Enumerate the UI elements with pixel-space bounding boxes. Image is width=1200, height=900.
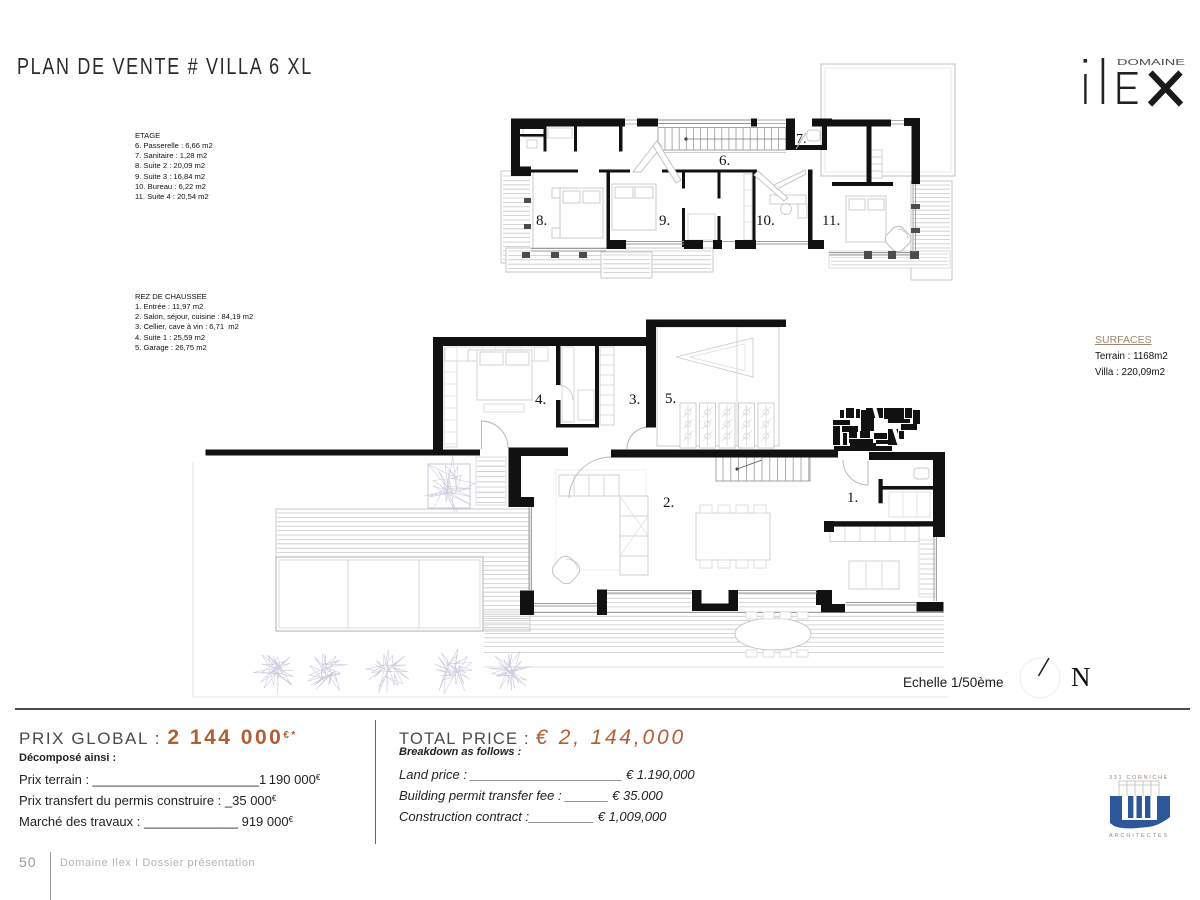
svg-text:7.: 7. bbox=[796, 132, 807, 147]
svg-text:3.: 3. bbox=[629, 392, 640, 408]
svg-text:4.: 4. bbox=[535, 392, 546, 408]
svg-text:N: N bbox=[1071, 662, 1091, 692]
svg-text:6.: 6. bbox=[719, 153, 730, 169]
svg-text:11.: 11. bbox=[822, 213, 840, 229]
svg-text:Echelle 1/50ème: Echelle 1/50ème bbox=[903, 675, 1004, 690]
svg-text:9.: 9. bbox=[659, 213, 670, 229]
svg-text:1.: 1. bbox=[847, 490, 858, 506]
svg-text:DOMAINE: DOMAINE bbox=[1117, 58, 1185, 67]
svg-text:10.: 10. bbox=[756, 213, 775, 229]
svg-text:8.: 8. bbox=[536, 213, 547, 229]
svg-text:ARCHITECTES: ARCHITECTES bbox=[1109, 833, 1169, 839]
svg-text:331 CORNICHE: 331 CORNICHE bbox=[1109, 775, 1169, 781]
svg-text:2.: 2. bbox=[663, 495, 674, 511]
svg-text:5.: 5. bbox=[665, 391, 676, 407]
